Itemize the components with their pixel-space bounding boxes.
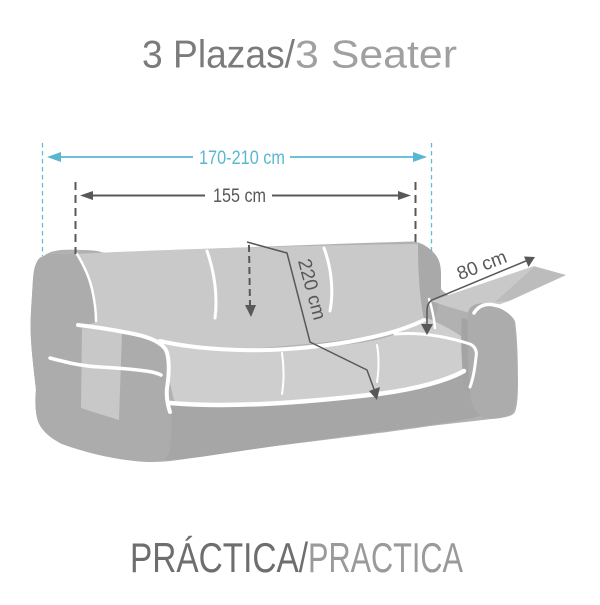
- svg-text:3 Plazas/: 3 Plazas/: [142, 34, 295, 77]
- svg-text:155 cm: 155 cm: [213, 186, 266, 207]
- svg-text:PRACTICA: PRACTICA: [308, 534, 463, 581]
- svg-text:170-210 cm: 170-210 cm: [199, 148, 285, 169]
- svg-text:PRÁCTICA/: PRÁCTICA/: [130, 534, 308, 581]
- svg-text:3 Seater: 3 Seater: [295, 34, 457, 77]
